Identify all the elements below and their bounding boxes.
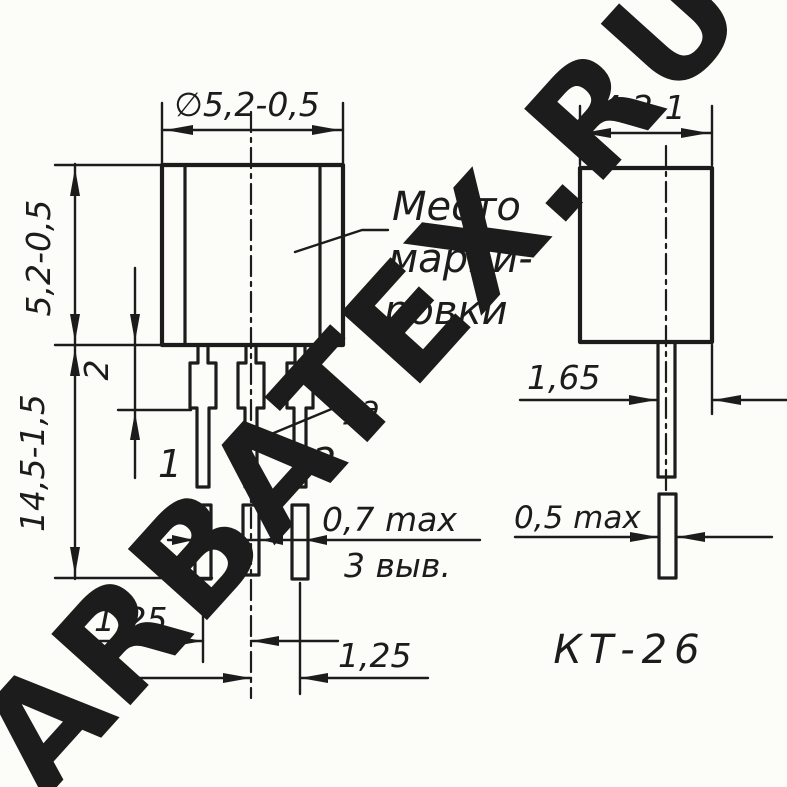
marking-note-line2: марки-	[388, 236, 533, 282]
drawing-canvas: ARBATEX.RU ∅5,2-0,5 5	[0, 0, 787, 787]
leads-count-note: 3 выв.	[344, 546, 451, 585]
side-dim-lead-offset-label: 1,65	[527, 358, 600, 397]
marking-note-line3: ровки	[383, 288, 508, 334]
side-dim-lead-width: 0,5 max	[514, 500, 772, 542]
technical-drawing: ARBATEX.RU ∅5,2-0,5 5	[0, 0, 787, 787]
front-dim-total-height-label: 14,5-1,5	[13, 394, 52, 532]
lead2-number: 2	[312, 440, 336, 484]
lead1-number: 1	[158, 442, 182, 486]
front-dim-pitch12-label: 1,25	[94, 600, 167, 639]
package-name-label: КТ-26	[553, 627, 706, 673]
side-dim-lead-width-label: 0,5 max	[514, 500, 641, 536]
side-dim-depth-label: 4,2-1	[600, 88, 685, 127]
front-dim-diameter: ∅5,2-0,5	[162, 85, 343, 163]
front-dim-pitch23-label: 1,25	[338, 636, 411, 675]
front-dim-shoulder-label: 2	[77, 360, 116, 381]
gate-lead-label: уэ	[343, 390, 379, 426]
marking-note-line1: Место	[392, 184, 521, 230]
side-dim-lead-offset: 1,65	[520, 345, 787, 414]
front-dim-diameter-label: ∅5,2-0,5	[174, 85, 320, 124]
front-dim-lead-thickness-label: 0,7 max	[322, 500, 457, 539]
side-lead-flat-tip	[659, 494, 676, 578]
front-dim-body-height-label: 5,2-0,5	[19, 200, 58, 317]
